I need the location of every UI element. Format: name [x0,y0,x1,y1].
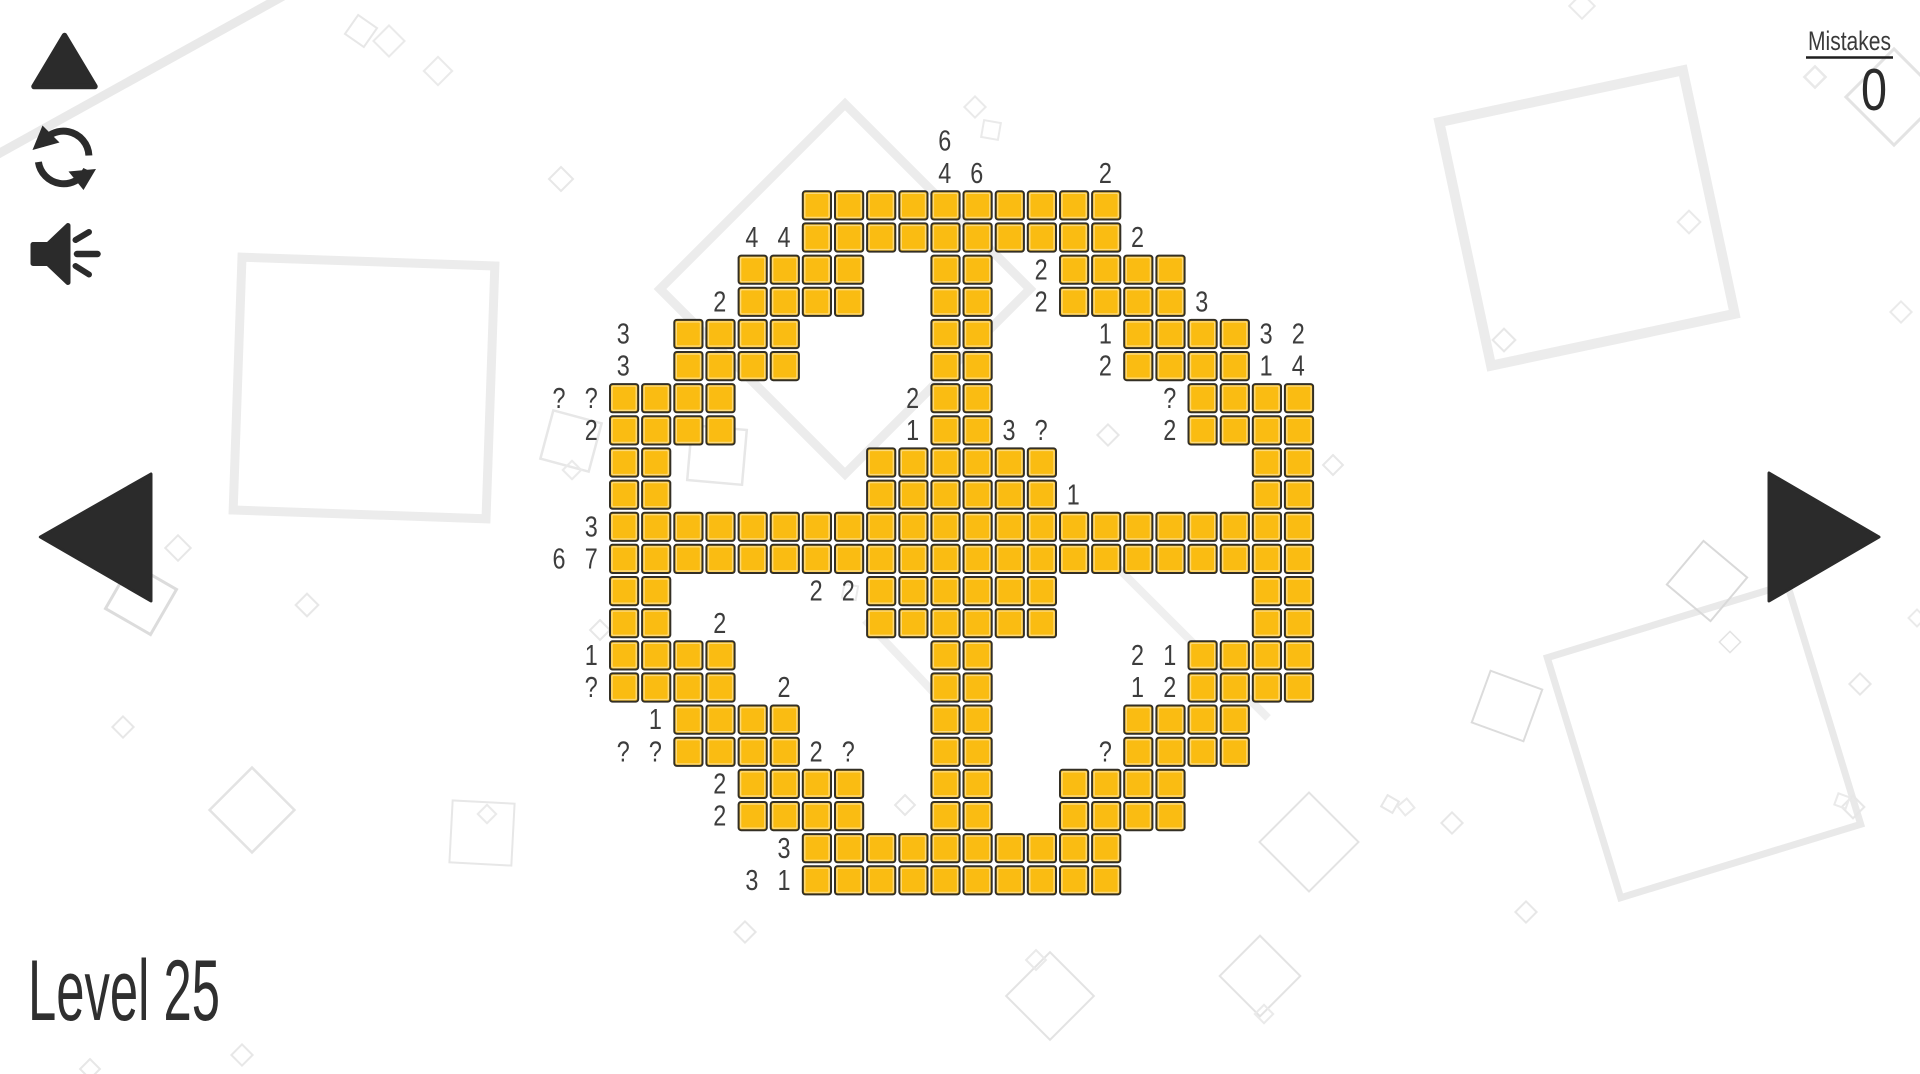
svg-text:2: 2 [778,672,791,704]
svg-text:6: 6 [553,544,566,576]
svg-text:?: ? [1163,383,1176,415]
svg-text:4: 4 [745,222,758,254]
svg-text:6: 6 [970,158,983,190]
svg-text:?: ? [585,672,598,704]
svg-text:4: 4 [1292,351,1305,383]
svg-text:3: 3 [1260,319,1273,351]
svg-text:2: 2 [842,576,855,608]
svg-text:2: 2 [1035,254,1048,286]
svg-text:2: 2 [1131,640,1144,672]
svg-text:1: 1 [1260,351,1273,383]
svg-text:6: 6 [938,126,951,158]
svg-text:1: 1 [906,415,919,447]
svg-text:1: 1 [1131,672,1144,704]
svg-text:2: 2 [1163,415,1176,447]
svg-text:0: 0 [1861,57,1887,123]
svg-text:2: 2 [810,576,823,608]
svg-text:1: 1 [1163,640,1176,672]
svg-text:4: 4 [778,222,791,254]
svg-text:2: 2 [713,608,726,640]
svg-text:2: 2 [906,383,919,415]
svg-text:Mistakes: Mistakes [1808,26,1891,56]
svg-text:?: ? [842,736,855,768]
svg-text:?: ? [649,736,662,768]
svg-text:?: ? [617,736,630,768]
svg-text:3: 3 [1195,286,1208,318]
svg-text:2: 2 [713,286,726,318]
svg-text:?: ? [585,383,598,415]
svg-text:3: 3 [617,351,630,383]
svg-text:2: 2 [1163,672,1176,704]
svg-text:2: 2 [1292,319,1305,351]
svg-text:1: 1 [778,865,791,897]
svg-text:2: 2 [1099,351,1112,383]
svg-text:?: ? [553,383,566,415]
svg-text:3: 3 [1003,415,1016,447]
svg-text:2: 2 [1099,158,1112,190]
svg-text:Level 25: Level 25 [28,943,220,1039]
svg-text:?: ? [1035,415,1048,447]
svg-text:2: 2 [810,736,823,768]
svg-text:2: 2 [713,801,726,833]
svg-text:2: 2 [585,415,598,447]
svg-text:1: 1 [1099,319,1112,351]
svg-text:1: 1 [1067,479,1080,511]
svg-text:3: 3 [778,833,791,865]
svg-text:2: 2 [1131,222,1144,254]
svg-text:2: 2 [713,769,726,801]
svg-text:3: 3 [585,511,598,543]
svg-text:?: ? [1099,736,1112,768]
svg-text:1: 1 [585,640,598,672]
svg-text:7: 7 [585,544,598,576]
svg-text:4: 4 [938,158,951,190]
svg-text:3: 3 [617,319,630,351]
svg-text:2: 2 [1035,286,1048,318]
svg-text:1: 1 [649,704,662,736]
svg-text:3: 3 [745,865,758,897]
